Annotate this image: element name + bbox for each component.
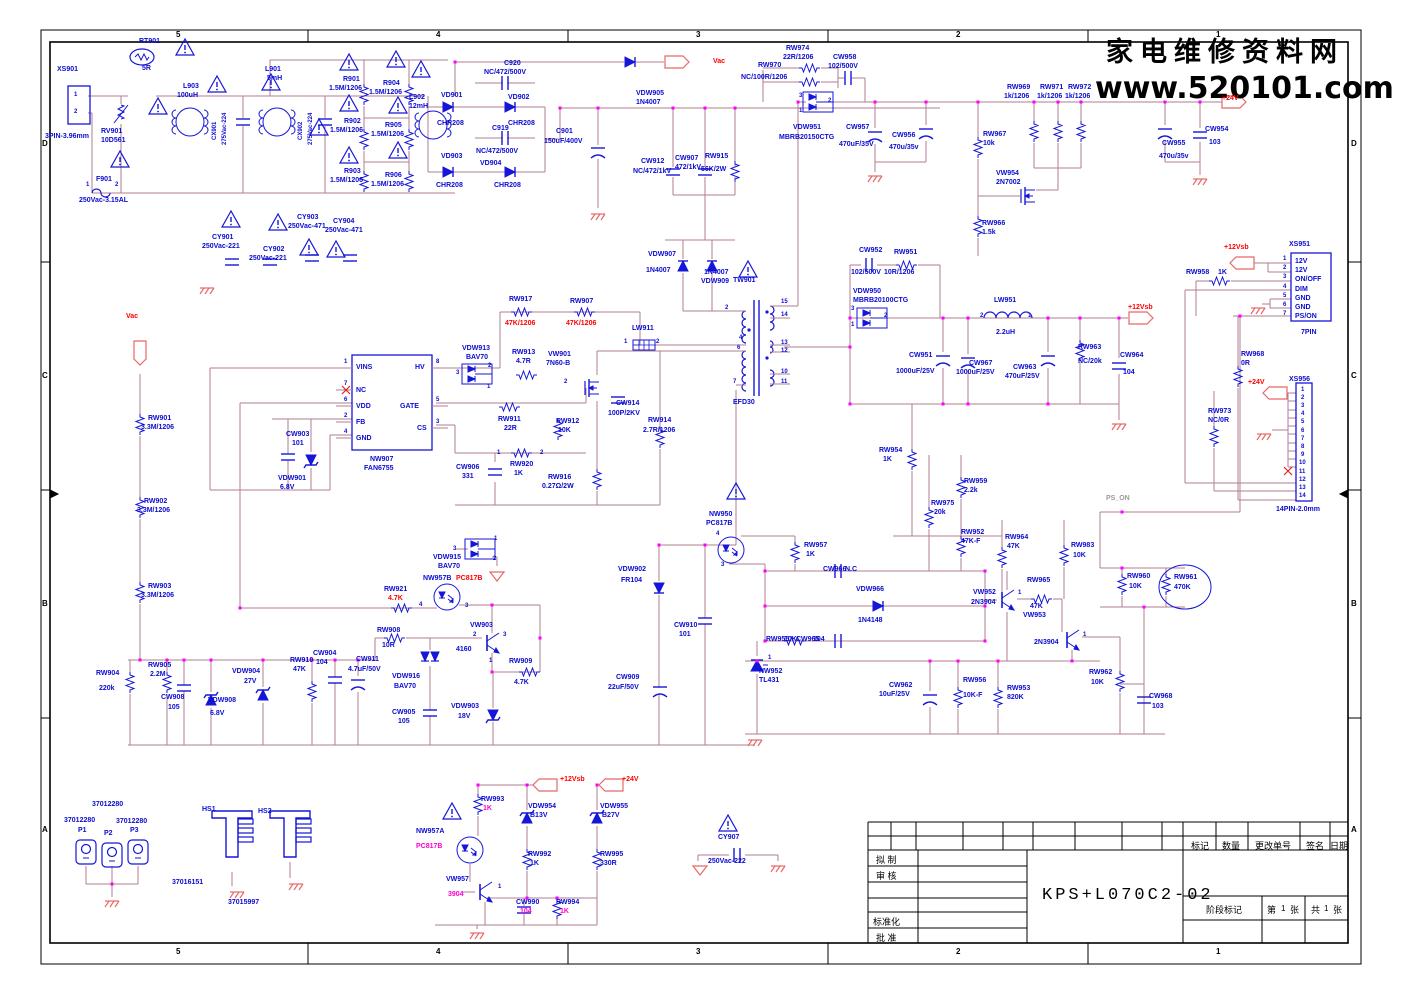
component-label: HS1 [202, 806, 216, 813]
component-label: 1000uF/25V [896, 368, 935, 375]
component-label: 13 [781, 340, 788, 346]
component-label: 1.5M/1206 [330, 127, 363, 134]
component-label: 2 [115, 182, 118, 188]
component-label: VDW913 [462, 345, 490, 352]
component-label: LW911 [632, 325, 654, 332]
component-label: 37015997 [228, 899, 259, 906]
component-label: 250Vac-471 [325, 227, 363, 234]
component-label: 12mH [409, 103, 428, 110]
component-label: 250Vac-222 [708, 858, 746, 865]
component-label: 102/500V [828, 63, 858, 70]
component-label: CW906 [456, 464, 479, 471]
component-label: 1.5M/1206 [329, 85, 362, 92]
component-label: RW909 [509, 658, 532, 665]
component-label: RW964 [1005, 534, 1028, 541]
component-label: 105 [398, 718, 410, 725]
component-label: R904 [383, 80, 400, 87]
component-label: RW968 [1241, 351, 1264, 358]
component-label: +24V [1222, 95, 1239, 102]
component-label: RW910 [290, 657, 313, 664]
component-label: 37012280 [92, 801, 123, 808]
component-label: NC/472/500V [476, 148, 518, 155]
component-label: VW957 [446, 876, 469, 883]
component-label: 47K [1030, 603, 1043, 610]
component-label: 10K [558, 427, 571, 434]
component-label: 1000uF/25V [956, 369, 995, 376]
component-label: 1 [498, 884, 501, 890]
component-label: RW907 [570, 298, 593, 305]
component-label: 1 [1018, 590, 1021, 596]
component-label: RW905 [148, 662, 171, 669]
component-label: HS2 [258, 808, 272, 815]
component-label: VDW950 [853, 288, 881, 295]
component-label: VDW951 [793, 124, 821, 131]
component-label: VDW909 [701, 278, 729, 285]
component-label: VDW966 [856, 586, 884, 593]
component-label: PS/ON [1295, 313, 1317, 320]
component-label: CW904 [313, 650, 336, 657]
component-label: MBRB20150CTG [779, 134, 834, 141]
component-label: 37016151 [172, 879, 203, 886]
component-label: +24V [1248, 379, 1265, 386]
border-zone-label: A [1351, 826, 1357, 834]
component-label: RW908 [377, 627, 400, 634]
component-label: RW971 [1040, 84, 1063, 91]
component-label: L902 [409, 94, 425, 101]
component-label: RW954 [879, 447, 902, 454]
component-label: 5 [436, 397, 439, 403]
component-label: 1 [86, 182, 89, 188]
watermark-chinese: 家电维修资料网 [1095, 30, 1355, 69]
component-label: RW975 [931, 500, 954, 507]
component-label: 5R [142, 65, 151, 72]
component-label: 10R [382, 642, 395, 649]
border-zone-label: C [42, 372, 48, 380]
component-label: 1 [489, 658, 492, 664]
component-label: RW953 [1007, 685, 1030, 692]
border-zone-label: 2 [956, 31, 960, 39]
component-label: NW907 [370, 456, 393, 463]
component-label: 6 [1283, 302, 1286, 308]
component-label: NW957B [423, 575, 451, 582]
component-label: F901 [96, 176, 112, 183]
component-label: CHR208 [508, 120, 535, 127]
component-label: 14 [781, 312, 788, 318]
component-label: 7 [733, 379, 736, 385]
border-zone-label: 4 [436, 948, 440, 956]
component-label: CW908 [161, 694, 184, 701]
component-label: 9 [1301, 452, 1304, 458]
component-label: 0.27Ω/2W [542, 483, 574, 490]
component-label: VDW955 [600, 803, 628, 810]
component-label: RW913 [512, 349, 535, 356]
component-label: BAV70 [394, 683, 416, 690]
title-mark-label: 标记 [1191, 839, 1209, 852]
component-label: 470uF/25V [1005, 373, 1040, 380]
component-label: 10R/1206 [884, 269, 914, 276]
border-zone-label: 4 [436, 31, 440, 39]
component-label: VINS [356, 364, 372, 371]
component-label: 1 [487, 384, 490, 390]
component-label: 250Vac-471 [288, 223, 326, 230]
component-label: P1 [78, 827, 87, 834]
component-label: 7PIN [1301, 329, 1317, 336]
component-label: VDD [356, 403, 371, 410]
border-zone-label: C [1351, 372, 1357, 380]
component-label: 3.3M/1206 [141, 424, 174, 431]
component-label: 104 [520, 908, 532, 915]
component-label: CW907 [675, 155, 698, 162]
component-label: VD901 [441, 92, 462, 99]
component-label: NC/0R [1208, 417, 1229, 424]
component-label: 6 [1301, 428, 1304, 434]
component-label: +12Vsb [1224, 244, 1249, 251]
component-label: R905 [385, 122, 402, 129]
parts-layer [68, 39, 1331, 939]
component-label: C901 [556, 128, 573, 135]
component-label: C919 [492, 125, 509, 132]
component-label: CW955 [1162, 140, 1185, 147]
component-label: 103 [1209, 139, 1221, 146]
component-label: 1K [530, 860, 539, 867]
component-label: 2.2uH [996, 329, 1015, 336]
component-label: CW909 [616, 674, 639, 681]
component-label: CY904 [333, 218, 354, 225]
component-label: 2 [828, 98, 831, 104]
component-label: 3904 [448, 891, 464, 898]
component-label: DIM [1295, 286, 1308, 293]
component-label: +12Vsb [560, 776, 585, 783]
component-label: 10 [781, 369, 788, 375]
component-label: 330R [600, 860, 617, 867]
component-label: P2 [104, 830, 113, 837]
component-label: 2 [540, 450, 543, 456]
component-label: 2 [473, 632, 476, 638]
component-label: 1k/1206 [1037, 93, 1062, 100]
component-label: 1 [344, 359, 347, 365]
component-label: 1 [1283, 256, 1286, 262]
component-label: 250Vac-3.15AL [79, 197, 128, 204]
component-label: 10K [1073, 552, 1086, 559]
component-label: EFD30 [733, 399, 755, 406]
component-label: 3 [1301, 403, 1304, 409]
component-label: FB [356, 419, 365, 426]
component-label: 2.2k [964, 487, 978, 494]
component-label: 2 [884, 313, 887, 319]
component-label: NC/20k [1078, 358, 1102, 365]
component-label: NW957A [416, 828, 444, 835]
component-label: CHR208 [437, 120, 464, 127]
component-label: 100uH [177, 92, 198, 99]
component-label: 4160 [456, 646, 472, 653]
component-label: 250Vac-221 [249, 255, 287, 262]
component-label: VDW902 [618, 566, 646, 573]
component-label: CW910 [674, 622, 697, 629]
component-label: 2 [725, 305, 728, 311]
component-label: 22uF/50V [608, 684, 639, 691]
component-label: RW952 [961, 529, 984, 536]
component-label: CY903 [297, 214, 318, 221]
component-label: 56K/2W [701, 166, 726, 173]
component-label: 4 [419, 602, 422, 608]
component-label: 47K/1206 [566, 320, 596, 327]
title-draft-label: 拟 制 [876, 853, 897, 866]
component-label: VD902 [508, 94, 529, 101]
component-label: B13V [530, 812, 548, 819]
component-label: RW969 [1007, 84, 1030, 91]
component-label: 22R [504, 425, 517, 432]
component-label: 47K [1007, 543, 1020, 550]
component-label: R906 [385, 172, 402, 179]
component-label: CW911 [356, 656, 379, 663]
component-label: FR104 [621, 577, 642, 584]
component-label: 47K/1206 [505, 320, 535, 327]
component-label: VW952 [973, 589, 996, 596]
component-label: 102/500V [851, 269, 881, 276]
component-label: GND [1295, 295, 1311, 302]
component-label: CS [417, 425, 427, 432]
component-label: 4 [1301, 411, 1304, 417]
component-label: CW967 [969, 360, 992, 367]
component-label: 10uF/25V [879, 691, 910, 698]
border-zone-label: B [1351, 600, 1357, 608]
component-label: 1K [483, 805, 492, 812]
component-label: 4 [716, 531, 719, 537]
component-label: CW958 [833, 54, 856, 61]
component-label: XS956 [1289, 376, 1310, 383]
component-label: RW911 [498, 416, 521, 423]
border-zone-label: 1 [1216, 31, 1220, 39]
component-label: 4.7uF/50V [348, 666, 381, 673]
component-label: 1.5M/1206 [371, 131, 404, 138]
component-label: 7 [344, 381, 347, 387]
title-qty-label: 数量 [1222, 839, 1240, 852]
component-label: 10D561 [101, 137, 126, 144]
component-label: N.C [845, 566, 857, 573]
component-label: GND [1295, 304, 1311, 311]
component-label: 1K [1218, 269, 1227, 276]
component-label: +24V [622, 776, 639, 783]
component-label: VDW904 [232, 668, 260, 675]
component-label: 14 [1299, 493, 1306, 499]
component-label: CW914 [616, 400, 639, 407]
component-label: VW903 [470, 622, 493, 629]
component-label: VDW908 [208, 697, 236, 704]
border-zone-label: 1 [1216, 948, 1220, 956]
title-total-prefix: 共 [1311, 903, 1320, 916]
component-label: 1k/1206 [1065, 93, 1090, 100]
component-label: CW957 [846, 124, 869, 131]
component-label: 3 [1283, 274, 1286, 280]
component-label: 2 [344, 413, 347, 419]
component-label: CHR208 [494, 182, 521, 189]
component-label: 6 [737, 345, 740, 351]
component-label: 11 [781, 379, 787, 385]
border-zone-label: 5 [176, 31, 180, 39]
component-label: 103 [1152, 703, 1164, 710]
title-total-no: 1 [1324, 904, 1328, 913]
component-label: 3 [503, 632, 506, 638]
component-label: 1 [1301, 387, 1304, 393]
component-label: 1 [624, 339, 627, 345]
component-label: 1 [497, 450, 500, 456]
component-label: 3 [721, 562, 724, 568]
component-label: 2 [656, 339, 659, 345]
component-label: CX901 [212, 122, 218, 140]
component-label: 7 [1301, 436, 1304, 442]
component-label: VD903 [441, 153, 462, 160]
schematic-page: 家电维修资料网 www.520101.com XS9013PIN-3.96mm1… [0, 0, 1402, 992]
component-label: NW950 [709, 511, 732, 518]
component-label: 3.3M/1206 [141, 592, 174, 599]
component-label: 1 [74, 92, 77, 98]
component-label: 1K [560, 908, 569, 915]
component-label: RT901 [139, 38, 160, 45]
component-label: RW957 [804, 542, 827, 549]
component-label: 4.7K [388, 595, 403, 602]
title-review-label: 审 核 [876, 869, 897, 882]
component-label: 2.2M [150, 671, 166, 678]
component-label: B27V [602, 812, 620, 819]
component-label: 2 [1283, 265, 1286, 271]
component-label: 331 [462, 473, 474, 480]
component-label: RW974 [786, 45, 809, 52]
component-label: 1 [1028, 313, 1031, 319]
component-label: 10 [1299, 460, 1306, 466]
component-label: 1N4007 [646, 267, 671, 274]
component-label: VDW954 [528, 803, 556, 810]
component-label: 1 [1083, 632, 1086, 638]
component-label: CX902 [298, 122, 304, 140]
component-label: 1 [851, 322, 854, 328]
component-label: BAV70 [438, 563, 460, 570]
component-label: 3 [465, 603, 468, 609]
component-label: 37012280 [116, 818, 147, 825]
title-sheet-prefix: 第 [1267, 903, 1276, 916]
border-zone-label: D [42, 140, 48, 148]
component-label: RW960 [1127, 573, 1150, 580]
title-sheet-no: 1 [1281, 904, 1285, 913]
component-label: NC/100R/1206 [741, 74, 787, 81]
component-label: 20k [934, 509, 946, 516]
component-label: RW902 [144, 498, 167, 505]
title-changeno-label: 更改单号 [1255, 839, 1291, 852]
title-sign-label: 签名 [1306, 839, 1324, 852]
component-label: PC817B [456, 575, 482, 582]
component-label: 2.7R/1206 [643, 427, 675, 434]
component-label: RW904 [96, 670, 119, 677]
component-label: 2 [564, 379, 567, 385]
component-label: GND [356, 435, 372, 442]
component-label: 2 [1301, 395, 1304, 401]
component-label: P3 [130, 827, 139, 834]
border-zone-label: 5 [176, 948, 180, 956]
component-label: CW964 [1120, 352, 1143, 359]
component-label: BAV70 [466, 354, 488, 361]
component-label: VDW907 [648, 251, 676, 258]
component-label: 14PIN-2.0mm [1276, 506, 1320, 513]
component-label: RW915 [705, 153, 728, 160]
component-label: 2N3904 [1034, 639, 1059, 646]
component-label: 10K [784, 636, 797, 643]
component-label: CW954 [1205, 126, 1228, 133]
component-label: 3.3M/1206 [137, 507, 170, 514]
component-label: RW959 [964, 478, 987, 485]
component-label: RW993 [481, 796, 504, 803]
component-label: 104 [316, 659, 328, 666]
component-label: TL431 [759, 677, 779, 684]
component-label: CY902 [263, 246, 284, 253]
component-label: 10K-F [963, 692, 982, 699]
component-label: RW970 [758, 62, 781, 69]
component-label: 2 [493, 556, 496, 562]
component-label: 3 [436, 419, 439, 425]
component-label: 1N4007 [704, 269, 729, 276]
component-label: 1K [806, 551, 815, 558]
component-label: 1 [494, 536, 497, 542]
component-label: RW973 [1208, 408, 1231, 415]
component-label: 5 [1301, 419, 1304, 425]
component-label: NC/472/500V [484, 69, 526, 76]
component-label: 1N4148 [858, 617, 883, 624]
component-label: CW963 [1013, 364, 1036, 371]
component-label: CW912 [641, 158, 664, 165]
component-label: L903 [183, 83, 199, 90]
component-label: 8 [436, 359, 439, 365]
component-label: VW953 [1023, 612, 1046, 619]
component-label: CW990 [516, 899, 539, 906]
component-label: PC817B [706, 520, 732, 527]
component-label: 47K-F [961, 538, 980, 545]
component-label: 104 [1123, 369, 1135, 376]
component-label: VDW903 [451, 703, 479, 710]
component-label: 27V [244, 678, 256, 685]
component-label: 12 [1299, 477, 1306, 483]
component-label: VDW901 [278, 475, 306, 482]
component-label: 12 [781, 348, 788, 354]
title-standardize-label: 标准化 [873, 915, 900, 928]
component-label: RW994 [556, 899, 579, 906]
component-label: RW967 [983, 131, 1006, 138]
component-label: RW966 [982, 220, 1005, 227]
component-label: 1.5M/1206 [330, 177, 363, 184]
title-approve-label: 批 准 [876, 931, 897, 944]
component-label: HV [415, 364, 425, 371]
component-label: 3PIN-3.96mm [45, 133, 89, 140]
component-label: 2N3904 [971, 599, 996, 606]
component-label: 4 [739, 335, 742, 341]
component-label: ON/OFF [1295, 276, 1321, 283]
component-label: 470uF/35V [839, 141, 874, 148]
component-label: L901 [265, 66, 281, 73]
component-label: 12V [1295, 258, 1307, 265]
component-label: CW903 [286, 431, 309, 438]
component-label: 37012280 [64, 817, 95, 824]
border-zone-label: A [42, 826, 48, 834]
component-label: 3 [453, 546, 456, 552]
component-label: CW956 [892, 132, 915, 139]
component-label: 10k [983, 140, 995, 147]
component-label: 100P/2KV [608, 410, 640, 417]
component-label: NC [356, 387, 366, 394]
component-label: 472/1kV [675, 164, 701, 171]
component-label: 3 [851, 306, 854, 312]
component-label: 101 [679, 631, 691, 638]
component-label: 10K [1129, 583, 1142, 590]
component-label: 105 [168, 704, 180, 711]
component-label: RW916 [548, 474, 571, 481]
border-zone-label: 2 [956, 948, 960, 956]
